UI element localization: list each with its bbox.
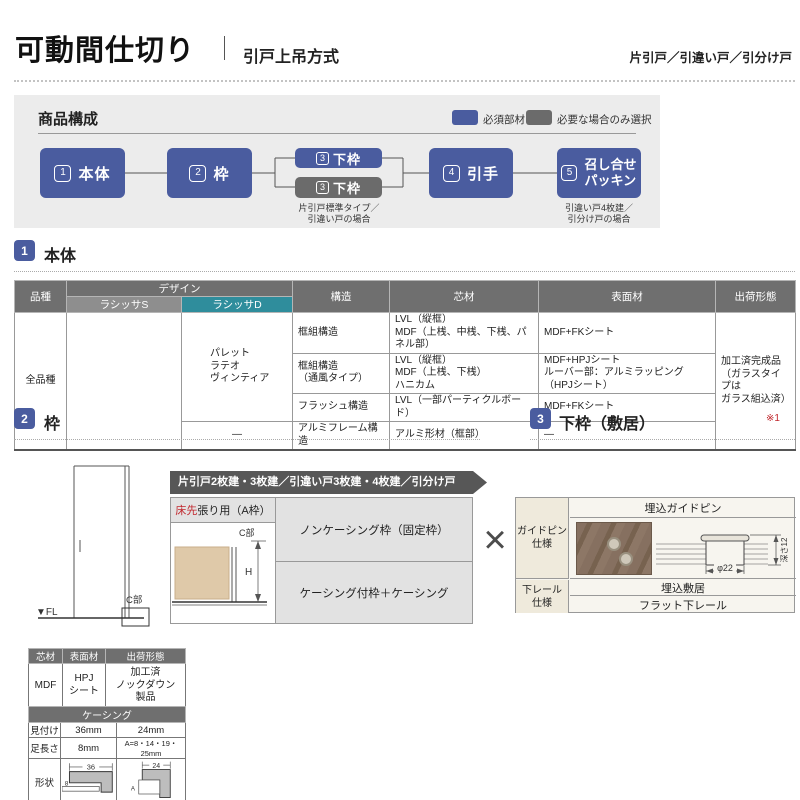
c-part-label: C部 xyxy=(126,594,142,606)
frame-options-table: 床先張り用（A枠） C部 H ノンケーシング枠（固定枠） ケーシング付枠＋ケーシ… xyxy=(170,497,473,624)
node-label: 下枠 xyxy=(333,178,361,197)
main-spec-table: 品種 デザイン 構造 芯材 表面材 出荷形態 ラシッサS ラシッサD 全品種 パ… xyxy=(14,280,796,451)
section3-divider xyxy=(530,439,795,440)
cell-hyomen: MDF+HPJシート ルーバー部：アルミラッピング（HPJシート） xyxy=(539,353,716,394)
header-divider xyxy=(14,80,795,82)
col-header-shinzai: 芯材 xyxy=(390,281,539,313)
cell-mitsuke-24: 24mm xyxy=(117,723,186,738)
catalog-page: 可動間仕切り 引戸上吊方式 片引戸／引違い戸／引分け戸 商品構成 必須部材 必要… xyxy=(0,0,800,800)
lower-rail-spec-label: 下レール 仕様 xyxy=(516,580,569,613)
door-config-banner: 片引戸2枚建・3枚建／引違い戸3枚建・4枚建／引分け戸 xyxy=(170,471,487,494)
node-label: 召し合せ パッキン xyxy=(584,157,636,188)
dim-24-label: 24 xyxy=(152,763,160,770)
col-header-hinshu: 品種 xyxy=(15,281,67,313)
h-dim-label: H xyxy=(245,567,252,578)
cell-ashi-24: A=8・14・19・25mm xyxy=(117,738,186,759)
section3-badge: 3 xyxy=(530,408,551,429)
floor-type-red: 床先 xyxy=(175,505,197,517)
section3-footnote-mark: ※1 xyxy=(766,413,780,424)
cell-lasissa-d-alumi: — xyxy=(182,422,293,451)
option-flat-rail: フラット下レール xyxy=(570,597,796,613)
table-row: 見付け 36mm 24mm xyxy=(29,723,186,738)
node-label: 下枠 xyxy=(333,149,361,168)
casing-dimension-table: ケーシング 見付け 36mm 24mm 足長さ 8mm A=8・14・19・25… xyxy=(28,706,186,800)
node-label: 引手 xyxy=(467,163,499,184)
node-shitawaku-optional: 3 下枠 xyxy=(295,177,382,198)
page-title: 可動間仕切り xyxy=(15,27,195,69)
guide-pin-photo xyxy=(576,522,652,575)
node-number-badge: 3 xyxy=(316,181,329,194)
dim-36-label: 36 xyxy=(87,763,95,772)
cell-shinzai: LVL（縦框） MDF（上桟、下桟） ハニカム xyxy=(390,353,539,394)
node-note-packing: 引違い戸4枚建／ 引分け戸の場合 xyxy=(534,203,664,226)
casing-shape-24: 24 A xyxy=(117,759,186,800)
cell-shinzai: MDF xyxy=(29,664,63,709)
col-header-lasissa-s: ラシッサS xyxy=(67,297,182,313)
node-shitawaku-required: 3 下枠 xyxy=(295,148,382,168)
col-header-shukka: 出荷形態 xyxy=(716,281,796,313)
guide-pin-spec-label: ガイドピン 仕様 xyxy=(516,498,569,579)
casing-table-title: ケーシング xyxy=(29,707,186,723)
section2-badge: 2 xyxy=(14,408,35,429)
cell-mitsuke-36: 36mm xyxy=(61,723,117,738)
guide-pin-content: φ22 深さ12 xyxy=(570,519,796,579)
node-hikite: 4 引手 xyxy=(429,148,513,198)
dim-8-label: 8 xyxy=(65,781,69,788)
guide-pin-header: 埋込ガイドピン xyxy=(570,498,796,518)
section1-divider xyxy=(14,271,795,272)
node-number-badge: 4 xyxy=(443,165,460,182)
floor-type-rest: 張り用（A枠） xyxy=(197,505,270,517)
c-part-detail-label: C部 xyxy=(239,527,255,538)
col-header-shinzai: 芯材 xyxy=(29,649,63,664)
pin-diameter-label: φ22 xyxy=(717,563,733,573)
col-header-design: デザイン xyxy=(67,281,293,297)
cell-shukka: 加工済完成品 （ガラスタイプは ガラス組込済） xyxy=(716,313,796,451)
cell-shinzai: LVL（縦框） MDF（上桟、中桟、下桟、パネル部） xyxy=(390,313,539,354)
cell-kozo: 框組構造 xyxy=(293,313,390,354)
a-frame-section-diagram: C部 H xyxy=(171,523,275,623)
cell-shinzai: アルミ形材（框部） xyxy=(390,422,539,451)
floor-type-label: 床先張り用（A枠） xyxy=(171,498,275,523)
multiply-icon: × xyxy=(472,518,518,563)
table-row: MDF HPJ シート 加工済 ノックダウン 製品 xyxy=(29,664,186,709)
table-row: 形状 36 8 xyxy=(29,759,186,800)
guide-pin-section-diagram: φ22 深さ12 xyxy=(654,520,794,578)
casing-shape-36: 36 8 xyxy=(61,759,117,800)
guide-pin-dot xyxy=(619,552,633,566)
table-row: 全品種 パレット ラテオ ヴィンティア 框組構造 LVL（縦框） MDF（上桟、… xyxy=(15,313,796,354)
cell-kozo: アルミフレーム構造 xyxy=(293,422,390,451)
section1-title: 本体 xyxy=(44,242,76,266)
node-number-badge: 2 xyxy=(189,165,206,182)
node-number-badge: 1 xyxy=(54,165,71,182)
table-header-row: 品種 デザイン 構造 芯材 表面材 出荷形態 xyxy=(15,281,796,297)
dim-a-label: A xyxy=(131,786,136,793)
cell-kozo: フラッシュ構造 xyxy=(293,394,390,422)
door-types-label: 片引戸／引違い戸／引分け戸 xyxy=(629,47,792,66)
lower-frame-table: ガイドピン 仕様 埋込ガイドピン xyxy=(515,497,795,613)
col-header-kozo: 構造 xyxy=(293,281,390,313)
cell-shinzai: LVL（一部パーティクルボード） xyxy=(390,394,539,422)
cell-ashi-36: 8mm xyxy=(61,738,117,759)
node-label: 枠 xyxy=(213,163,229,184)
door-elevation-diagram: ▼FL C部 xyxy=(28,452,168,627)
cell-shukka: 加工済 ノックダウン 製品 xyxy=(106,664,186,709)
cell-hyomen: MDF+FKシート xyxy=(539,313,716,354)
fl-label: ▼FL xyxy=(36,607,58,618)
node-number-badge: 5 xyxy=(561,165,577,181)
composition-panel: 商品構成 必須部材 必要な場合のみ選択 1 本体 2 xyxy=(14,95,660,228)
guide-pin-dot xyxy=(607,537,621,551)
col-header-hyomen: 表面材 xyxy=(539,281,716,313)
section2-divider xyxy=(14,439,480,440)
row-label-mitsuke: 見付け xyxy=(29,723,61,738)
frame-option-list: ノンケーシング枠（固定枠） ケーシング付枠＋ケーシング xyxy=(275,498,472,623)
node-hontai: 1 本体 xyxy=(40,148,125,198)
table-header-row: 芯材 表面材 出荷形態 xyxy=(29,649,186,664)
cell-lasissa-d: パレット ラテオ ヴィンティア xyxy=(182,313,293,422)
node-packing: 5 召し合せ パッキン xyxy=(557,148,641,198)
table-header-row: ケーシング xyxy=(29,707,186,723)
cell-hyomen: HPJ シート xyxy=(63,664,106,709)
node-label: 本体 xyxy=(78,163,110,184)
cell-lasissa-s xyxy=(67,313,182,451)
row-label-keijo: 形状 xyxy=(29,759,61,800)
row-label-ashinagasa: 足長さ xyxy=(29,738,61,759)
option-noncasing: ノンケーシング枠（固定枠） xyxy=(276,498,472,561)
section2-title: 枠 xyxy=(44,410,60,434)
node-waku: 2 枠 xyxy=(167,148,252,198)
pin-depth-label: 深さ12 xyxy=(780,537,789,562)
cell-kozo: 框組構造 （通風タイプ） xyxy=(293,353,390,394)
title-separator xyxy=(224,36,225,60)
col-header-hyomen: 表面材 xyxy=(63,649,106,664)
section1-badge: 1 xyxy=(14,240,35,261)
col-header-lasissa-d: ラシッサD xyxy=(182,297,293,313)
section3-title: 下枠（敷居） xyxy=(559,410,655,434)
node-number-badge: 3 xyxy=(316,152,329,165)
col-header-shukka: 出荷形態 xyxy=(106,649,186,664)
option-buried-sill: 埋込敷居 xyxy=(570,580,796,596)
option-casing: ケーシング付枠＋ケーシング xyxy=(276,561,472,623)
table-row: 足長さ 8mm A=8・14・19・25mm xyxy=(29,738,186,759)
casing-material-table: 芯材 表面材 出荷形態 MDF HPJ シート 加工済 ノックダウン 製品 xyxy=(28,648,186,709)
node-note-shitawaku: 片引戸標準タイプ／ 引違い戸の場合 xyxy=(274,203,404,226)
page-subtitle: 引戸上吊方式 xyxy=(243,43,339,67)
